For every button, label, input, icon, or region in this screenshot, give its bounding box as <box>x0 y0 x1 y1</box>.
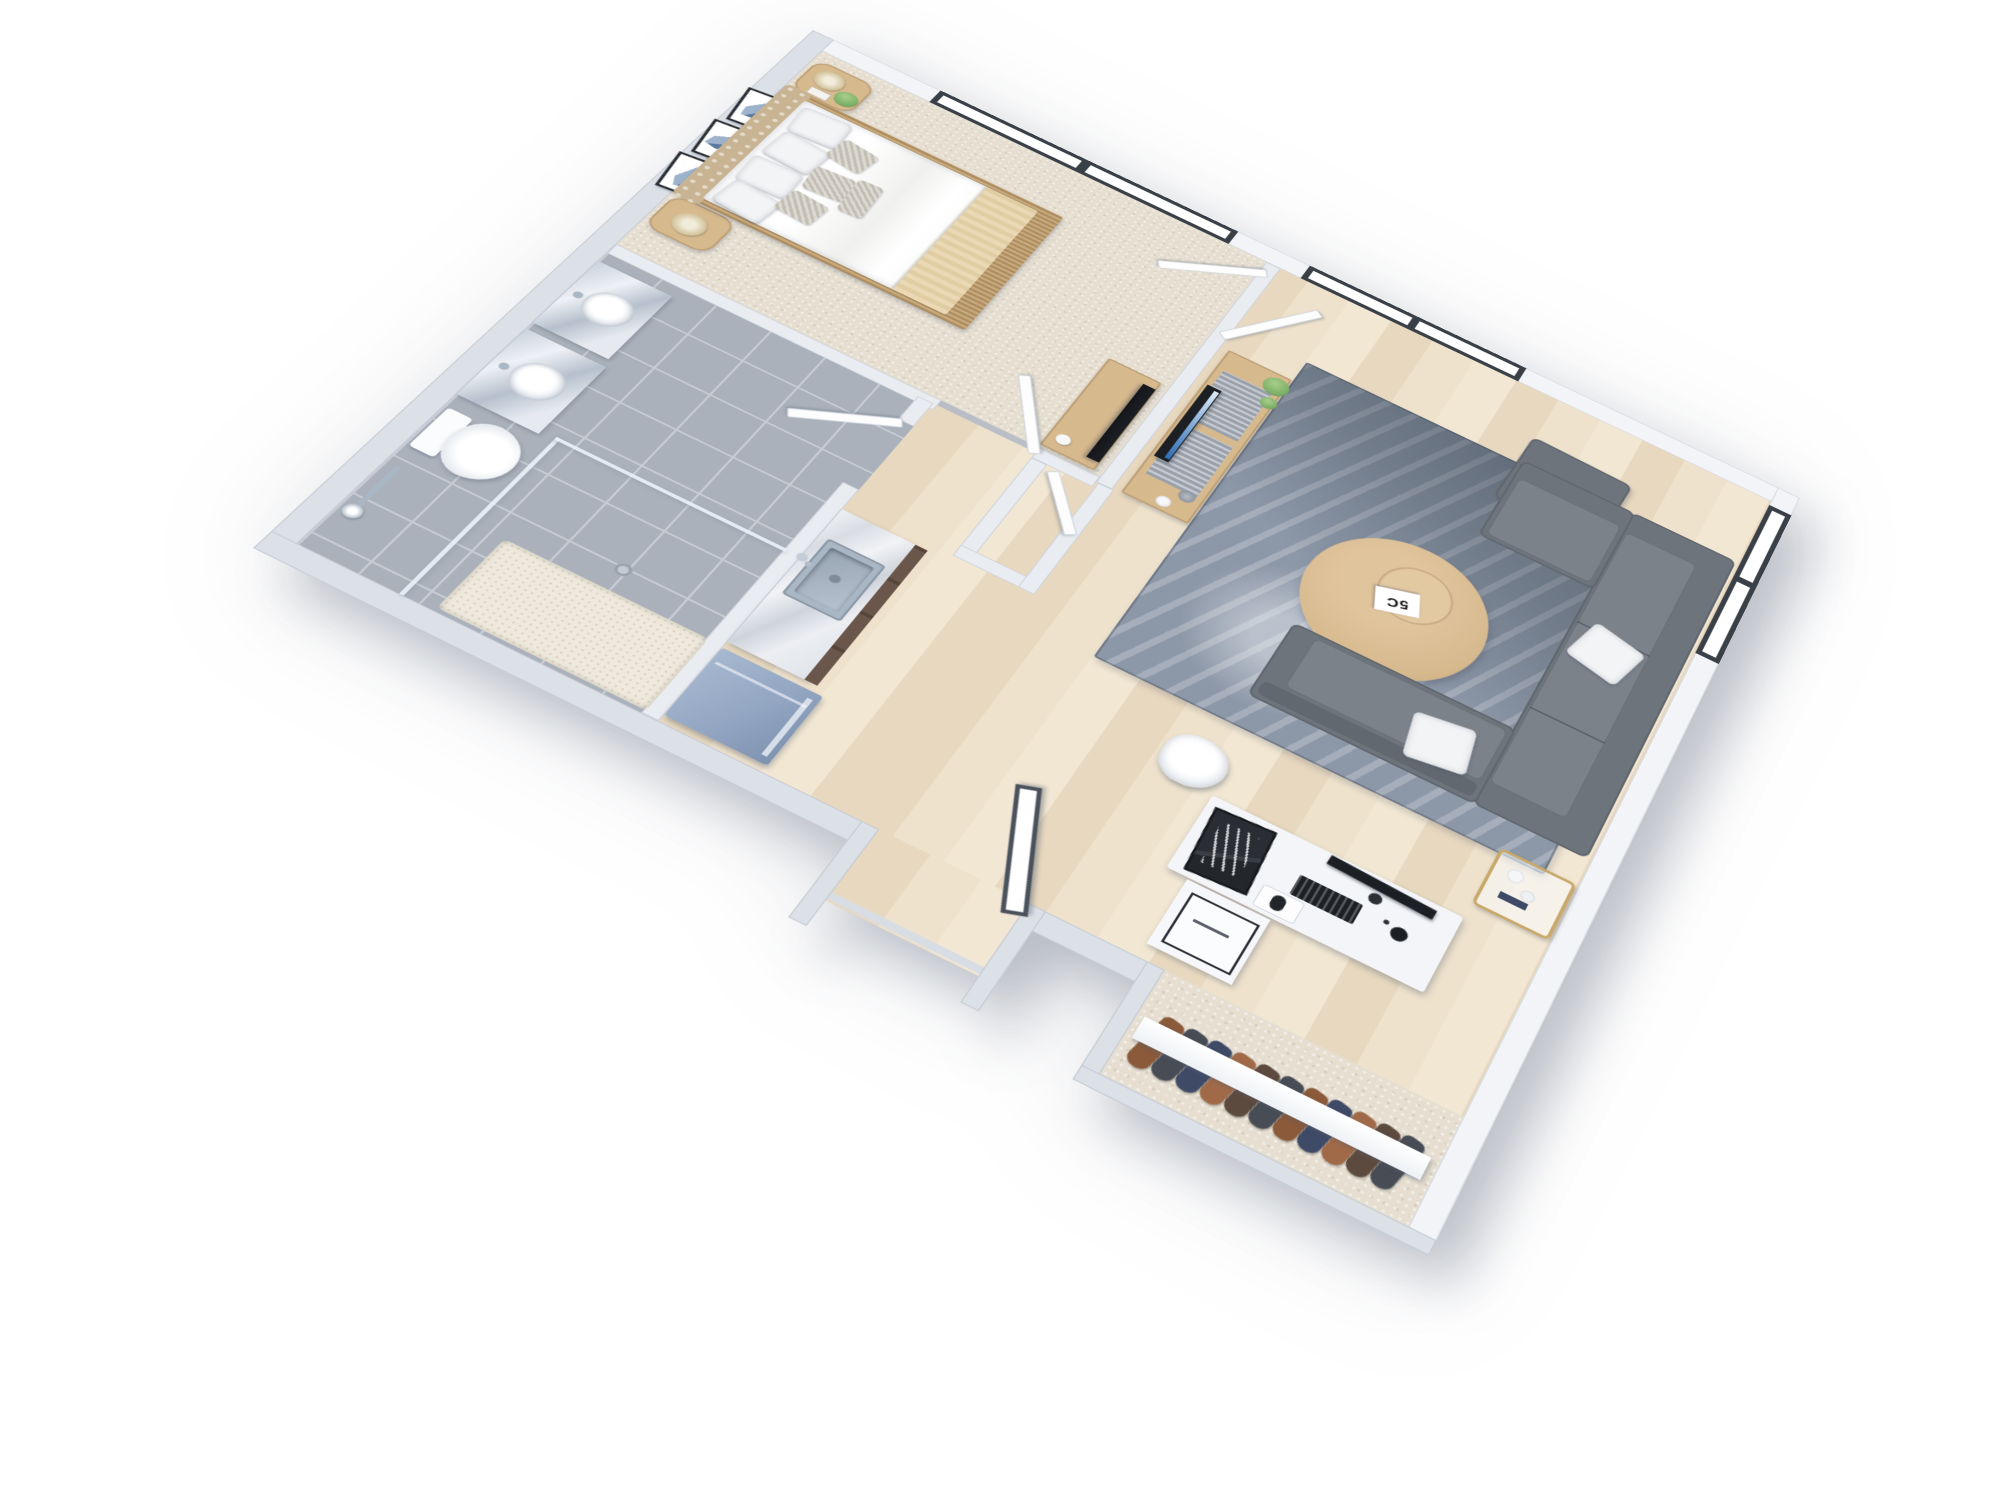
floor-plan-viewport: 5C <box>0 0 2000 1500</box>
table-lamp <box>665 208 713 240</box>
poster-print <box>1183 807 1277 896</box>
microphone <box>1387 924 1410 944</box>
poster-artwork <box>1201 821 1260 878</box>
keyboard <box>1289 875 1363 925</box>
apartment-floor-plan: 5C <box>165 30 1800 1256</box>
scene-shadow-wrapper: 5C <box>0 0 2000 1500</box>
side-table-decor <box>1505 867 1527 886</box>
decor-pot <box>1053 432 1073 447</box>
